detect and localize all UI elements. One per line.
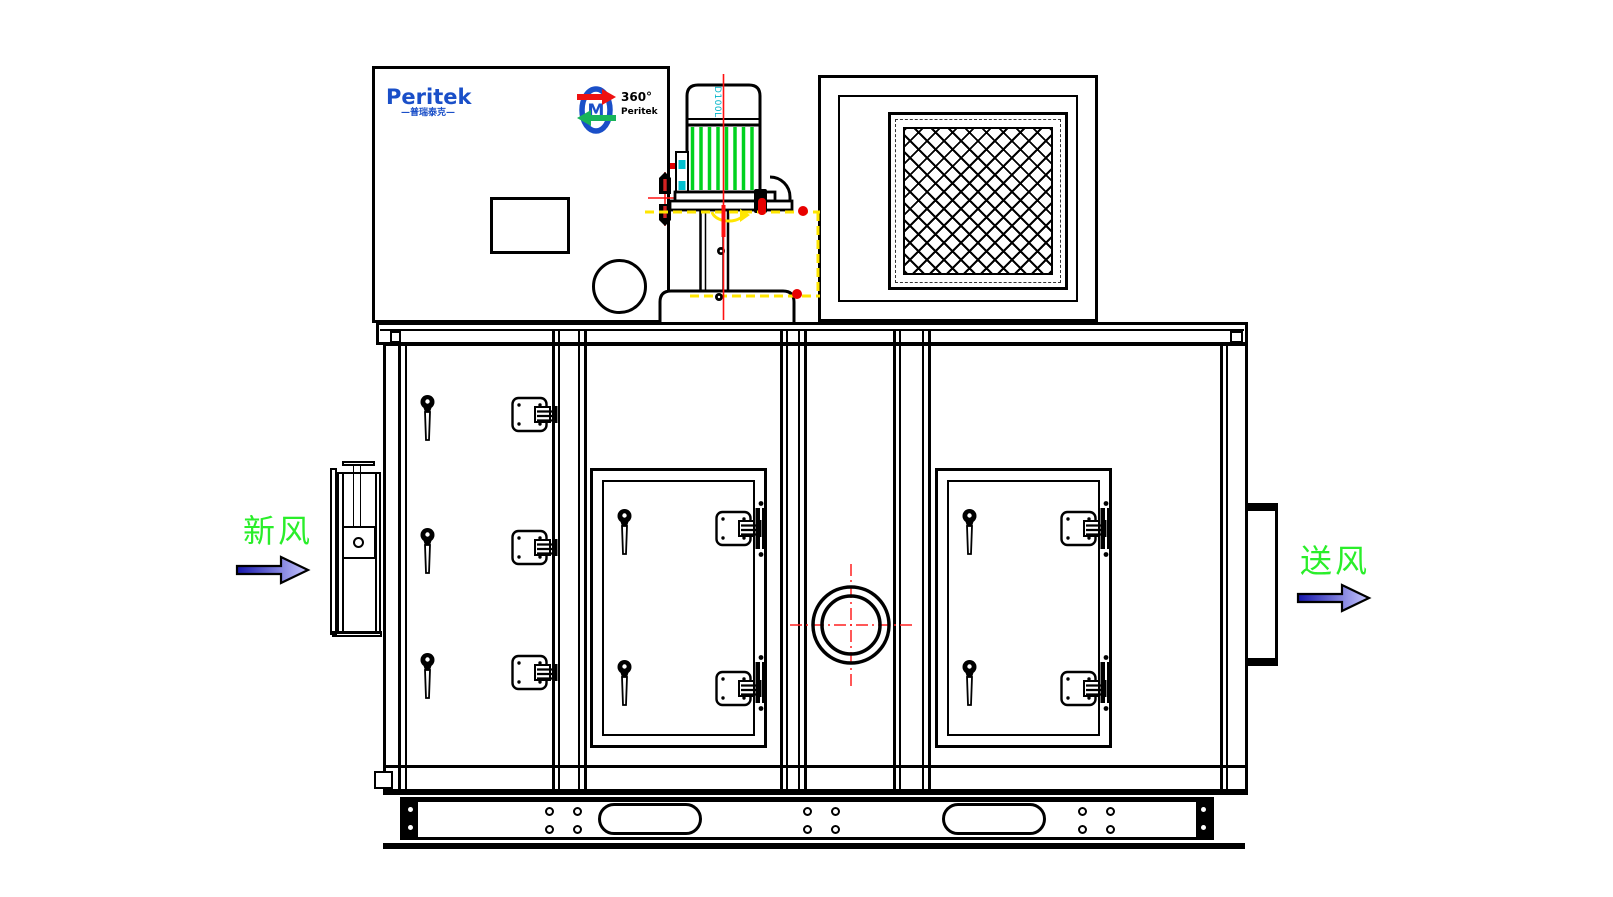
bolt-hole (831, 807, 840, 816)
outlet-flange-bottom (1248, 658, 1278, 666)
door-latch (511, 654, 558, 692)
cabinet-divider (928, 331, 931, 790)
motor-assembly (640, 70, 840, 330)
bolt-hole (803, 807, 812, 816)
outlet-flange-top (1248, 503, 1278, 511)
cabinet-divider (584, 331, 587, 790)
motor-mount-plate (670, 201, 792, 210)
cabinet-right-inner-wall (1220, 346, 1223, 790)
door-hinge (1100, 654, 1113, 712)
cabinet-corner-step (374, 771, 393, 789)
damper-actuator-knob (353, 537, 364, 548)
inlet-flange-plate (330, 468, 337, 635)
cabinet-divider (558, 331, 560, 790)
anchor-slot (942, 803, 1046, 835)
top-cap-corner-notch-left (390, 331, 401, 343)
outlet-flow-arrow-icon (1296, 582, 1372, 614)
door-handle-icon (961, 508, 978, 558)
cabinet-divider (922, 331, 924, 790)
bolt-hole (1106, 807, 1115, 816)
base-foot (1196, 801, 1211, 837)
door-handle-icon (419, 652, 436, 702)
door-handle-icon (616, 659, 633, 709)
cabinet-divider (786, 331, 788, 790)
highlight-dimension-lines (645, 212, 820, 296)
motor-model-label: D100L (712, 86, 722, 120)
brand-logo: Peritek —普瑞泰克— (386, 86, 470, 119)
cabinet-divider (578, 331, 580, 790)
door-latch (511, 529, 558, 567)
door-hinge (1100, 500, 1113, 558)
cabinet-divider (893, 331, 896, 790)
cabinet-divider (804, 331, 807, 790)
door-handle-icon (419, 527, 436, 577)
cabinet-bottom-inner-line (386, 765, 1245, 768)
anchor-slot (598, 803, 702, 835)
base-foot (403, 801, 418, 837)
bolt-hole (831, 825, 840, 834)
bolt-hole (1078, 825, 1087, 834)
bolt-hole (573, 825, 582, 834)
ground-line (383, 843, 1245, 849)
bolt-hole (545, 807, 554, 816)
bolt-hole (1078, 807, 1087, 816)
cabinet-divider (899, 331, 901, 790)
fastener-red (798, 206, 808, 216)
door-handle-icon (419, 394, 436, 444)
fastener-red (758, 198, 766, 215)
door-latch (511, 396, 558, 434)
inlet-flow-arrow-icon (235, 554, 311, 586)
panel-round-port (592, 259, 647, 314)
brand-logo-text: Peritek (386, 86, 470, 108)
cabinet-right-inner-wall (1226, 346, 1228, 790)
bolt-hole (1106, 825, 1115, 834)
filter-mesh (903, 127, 1053, 275)
cabinet-left-inner-wall (405, 346, 407, 790)
drawing-canvas: Peritek —普瑞泰克— M 360° Peritek (0, 0, 1613, 897)
door-handle-icon (616, 508, 633, 558)
cabinet-left-inner-wall (398, 346, 401, 790)
inlet-label: 新风 (243, 506, 313, 552)
outlet-label: 送风 (1300, 536, 1370, 582)
brand-logo-subtext: —普瑞泰克— (386, 108, 470, 119)
inspection-port (790, 564, 912, 686)
damper-rod (360, 466, 362, 528)
door-hinge (755, 654, 768, 712)
cabinet-divider (798, 331, 800, 790)
damper-handle (342, 461, 375, 466)
supply-air-outlet-duct (1275, 503, 1278, 666)
top-cap-corner-notch-right (1230, 331, 1243, 343)
bolt-hole (803, 825, 812, 834)
door-handle-icon (961, 659, 978, 709)
cabinet-divider (780, 331, 783, 790)
fastener-red (792, 289, 802, 299)
bolt-hole (545, 825, 554, 834)
panel-window (490, 197, 570, 254)
door-hinge (755, 500, 768, 558)
inlet-duct-base (332, 631, 382, 637)
damper-rod (353, 466, 355, 528)
bolt-hole (573, 807, 582, 816)
